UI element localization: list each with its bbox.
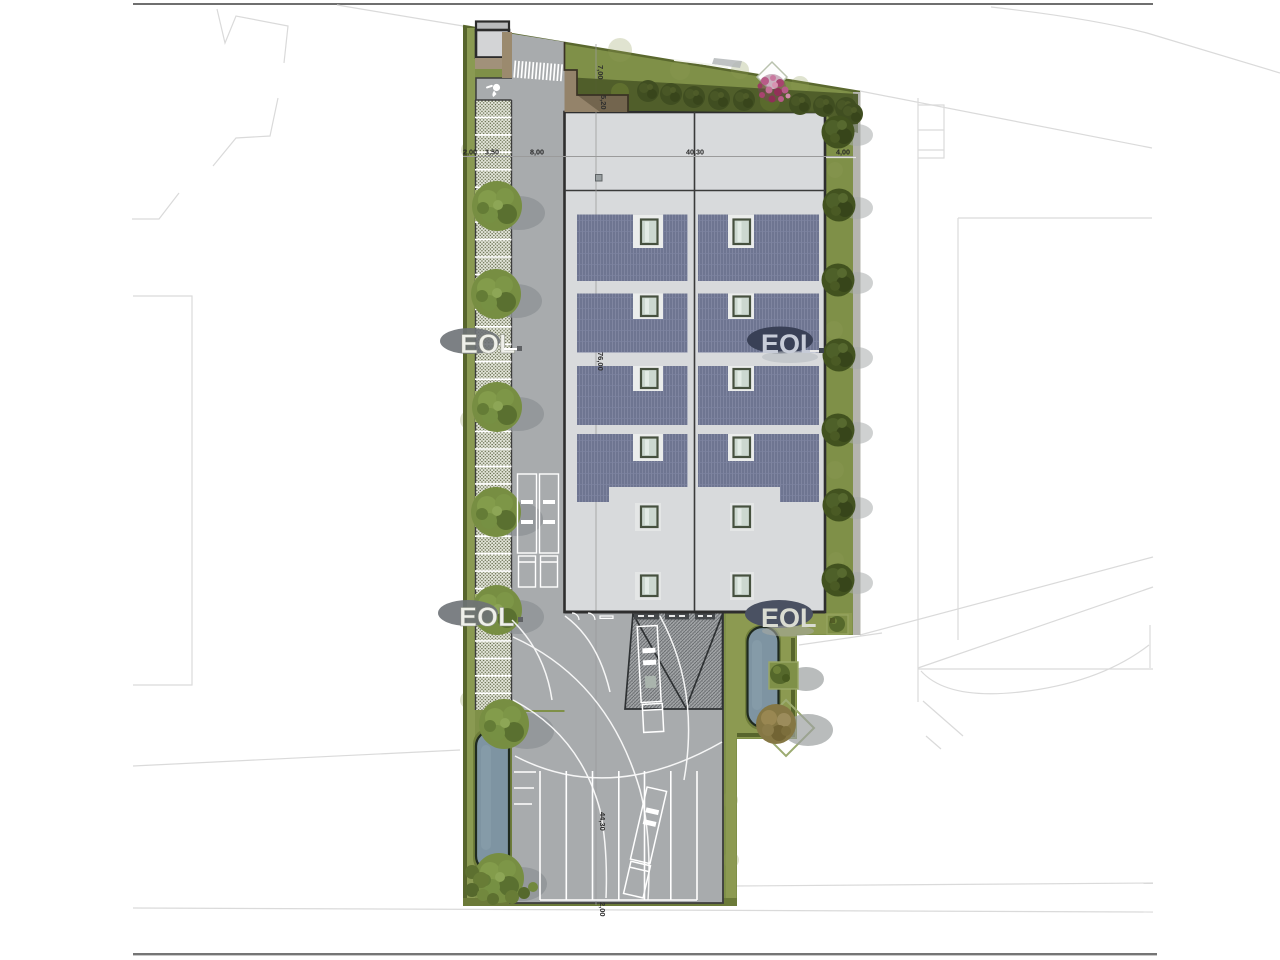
svg-text:EOL: EOL — [761, 603, 817, 633]
svg-text:4,00: 4,00 — [836, 148, 850, 157]
svg-text:44,30: 44,30 — [598, 812, 607, 831]
svg-text:76,00: 76,00 — [596, 352, 605, 371]
svg-text:8,00: 8,00 — [530, 148, 544, 157]
svg-text:3,50: 3,50 — [485, 148, 499, 157]
svg-text:EOL: EOL — [460, 329, 516, 359]
svg-text:7,00: 7,00 — [596, 65, 605, 80]
svg-text:40,30: 40,30 — [686, 148, 704, 157]
svg-text:EOL: EOL — [459, 602, 515, 632]
svg-text:EOL: EOL — [761, 329, 817, 359]
svg-text:2,00: 2,00 — [463, 148, 477, 157]
svg-text:5,20: 5,20 — [599, 95, 608, 110]
svg-text:2,00: 2,00 — [598, 902, 607, 917]
